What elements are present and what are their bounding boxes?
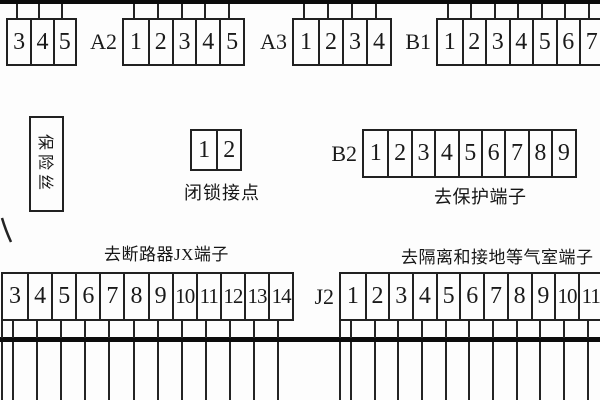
wire	[447, 4, 449, 19]
terminal-cell: 7	[504, 131, 527, 176]
terminal-cell: 5	[51, 274, 75, 319]
wire	[277, 321, 279, 338]
terminal-block-J2: J21234567891011	[339, 272, 600, 321]
terminal-cell: 2	[148, 20, 172, 64]
wire	[133, 321, 135, 338]
wire	[84, 321, 86, 338]
terminal-cell: 1	[341, 274, 365, 319]
terminal-cell: 3	[485, 20, 509, 64]
terminal-cell: 10	[554, 274, 578, 319]
terminal-cell: 1	[192, 131, 216, 169]
terminal-block-top-strip-1: 345	[6, 18, 77, 66]
terminal-cell: 8	[507, 274, 531, 319]
terminal-cell: 12	[220, 274, 244, 319]
terminal-cell: 1	[124, 20, 148, 64]
stray-wire-stroke	[0, 210, 20, 250]
terminal-cell: 14	[268, 274, 292, 319]
wire	[539, 321, 541, 338]
terminal-cell: 6	[75, 274, 99, 319]
to-breaker-jx-terminals-label: 去断路器JX端子	[104, 240, 229, 265]
terminal-cell: 5	[532, 20, 556, 64]
terminal-cell: 9	[148, 274, 172, 319]
wire	[157, 4, 159, 19]
wire	[517, 4, 519, 19]
block-label-B1: B1	[405, 29, 431, 55]
to-isolation-ground-terminals-label: 去隔离和接地等气室端子	[401, 243, 594, 268]
wire	[181, 342, 183, 400]
wire	[327, 4, 329, 19]
wire	[205, 321, 207, 338]
terminal-cells: 123456789	[362, 129, 577, 178]
terminal-cell: 1	[294, 20, 318, 64]
terminal-cell: 6	[459, 274, 483, 319]
wire	[516, 321, 518, 338]
terminal-cell: 3	[3, 274, 27, 319]
wire	[108, 321, 110, 338]
wire	[60, 342, 62, 400]
terminal-cell: 5	[219, 20, 243, 64]
terminal-cell: 4	[509, 20, 533, 64]
wire	[587, 321, 589, 338]
terminal-cell: 1	[438, 20, 462, 64]
to-protection-terminals-label: 去保护端子	[434, 183, 527, 209]
terminal-cell: 6	[556, 20, 580, 64]
terminal-cell: 6	[481, 131, 504, 176]
terminal-block-A2: A212345	[122, 18, 245, 66]
wire	[351, 4, 353, 19]
wire	[133, 4, 135, 19]
fuse-label: 保险丝	[35, 134, 59, 194]
terminal-cell: 8	[123, 274, 147, 319]
wire	[563, 342, 565, 400]
block-label-B2: B2	[331, 141, 357, 167]
wire	[84, 342, 86, 400]
terminal-cell: 1	[364, 131, 387, 176]
terminal-cell: 9	[551, 131, 574, 176]
terminal-cell: 2	[318, 20, 342, 64]
terminal-cells: 1234	[292, 18, 392, 66]
wire	[516, 342, 518, 400]
terminal-cell: 2	[462, 20, 486, 64]
terminal-cell: 11	[578, 274, 600, 319]
terminal-cell: 9	[531, 274, 555, 319]
wire	[494, 4, 496, 19]
terminal-block-breaker-jx-strip: 34567891011121314	[1, 272, 294, 321]
terminal-cell: 11	[196, 274, 220, 319]
wire	[205, 342, 207, 400]
terminal-cells: 12	[190, 129, 242, 171]
terminal-cell: 10	[172, 274, 196, 319]
wire	[228, 4, 230, 19]
interlock-contact-label: 闭锁接点	[184, 179, 260, 205]
wire	[157, 321, 159, 338]
wire	[181, 321, 183, 338]
wire	[181, 4, 183, 19]
terminal-cells: 1234567	[436, 18, 600, 66]
wire	[375, 4, 377, 19]
wire	[339, 342, 341, 400]
wire	[60, 321, 62, 338]
terminal-cell: 13	[244, 274, 268, 319]
wire	[421, 342, 423, 400]
terminal-cell: 3	[411, 131, 434, 176]
wire	[588, 4, 590, 19]
terminal-cells: 34567891011121314	[1, 272, 294, 321]
terminal-cell: 8	[528, 131, 551, 176]
block-label-J2: J2	[314, 284, 334, 310]
terminal-cell: 4	[195, 20, 219, 64]
wire	[253, 342, 255, 400]
terminal-cell: 7	[579, 20, 600, 64]
wire	[397, 342, 399, 400]
terminal-cell: 5	[458, 131, 481, 176]
wire	[229, 342, 231, 400]
wire	[492, 342, 494, 400]
wire	[445, 342, 447, 400]
wire	[470, 4, 472, 19]
fuse-box: 保险丝	[29, 116, 64, 212]
wire	[374, 342, 376, 400]
wire	[36, 321, 38, 338]
wire	[12, 342, 14, 400]
wire	[445, 321, 447, 338]
wire	[492, 321, 494, 338]
wire	[133, 342, 135, 400]
terminal-cell: 2	[216, 131, 240, 169]
wire	[350, 321, 352, 338]
terminal-cell: 7	[483, 274, 507, 319]
wire	[16, 4, 18, 19]
wire	[1, 321, 3, 338]
terminal-cell: 4	[27, 274, 51, 319]
wire	[468, 342, 470, 400]
terminal-cell: 5	[53, 20, 75, 64]
wire	[421, 321, 423, 338]
terminal-cell: 5	[436, 274, 460, 319]
terminal-block-B2: B2123456789	[362, 129, 577, 178]
top-bus-bar	[0, 0, 600, 4]
wire	[303, 4, 305, 19]
wire	[339, 321, 341, 338]
terminal-wiring-diagram: 保险丝 闭锁接点 去保护端子 去断路器JX端子 去隔离和接地等气室端子 345A…	[0, 0, 600, 400]
wire	[1, 342, 3, 400]
terminal-cells: 345	[6, 18, 77, 66]
wire	[541, 4, 543, 19]
terminal-cells: 12345	[122, 18, 245, 66]
wire	[157, 342, 159, 400]
wire	[253, 321, 255, 338]
block-label-A3: A3	[260, 29, 287, 55]
terminal-cell: 4	[366, 20, 390, 64]
wire	[374, 321, 376, 338]
wire	[61, 4, 63, 19]
terminal-cell: 2	[387, 131, 410, 176]
terminal-cell: 3	[8, 20, 30, 64]
wire	[38, 4, 40, 19]
wire	[350, 342, 352, 400]
terminal-cell: 3	[172, 20, 196, 64]
terminal-cell: 3	[342, 20, 366, 64]
terminal-cell: 7	[99, 274, 123, 319]
terminal-cell: 4	[412, 274, 436, 319]
wire	[277, 342, 279, 400]
wire	[204, 4, 206, 19]
wire	[564, 4, 566, 19]
terminal-cell: 4	[434, 131, 457, 176]
wire	[397, 321, 399, 338]
terminal-cell: 4	[30, 20, 52, 64]
terminal-block-A3: A31234	[292, 18, 392, 66]
wire	[468, 321, 470, 338]
terminal-block-B1: B11234567	[436, 18, 600, 66]
bottom-bus-bar	[0, 337, 600, 342]
wire	[12, 321, 14, 338]
wire	[36, 342, 38, 400]
wire	[563, 321, 565, 338]
terminal-cell: 2	[365, 274, 389, 319]
block-label-A2: A2	[90, 29, 117, 55]
wire	[108, 342, 110, 400]
wire	[229, 321, 231, 338]
terminal-cell: 3	[388, 274, 412, 319]
wire	[587, 342, 589, 400]
terminal-block-interlock-contact-block: 12	[190, 129, 242, 171]
terminal-cells: 1234567891011	[339, 272, 600, 321]
wire	[539, 342, 541, 400]
